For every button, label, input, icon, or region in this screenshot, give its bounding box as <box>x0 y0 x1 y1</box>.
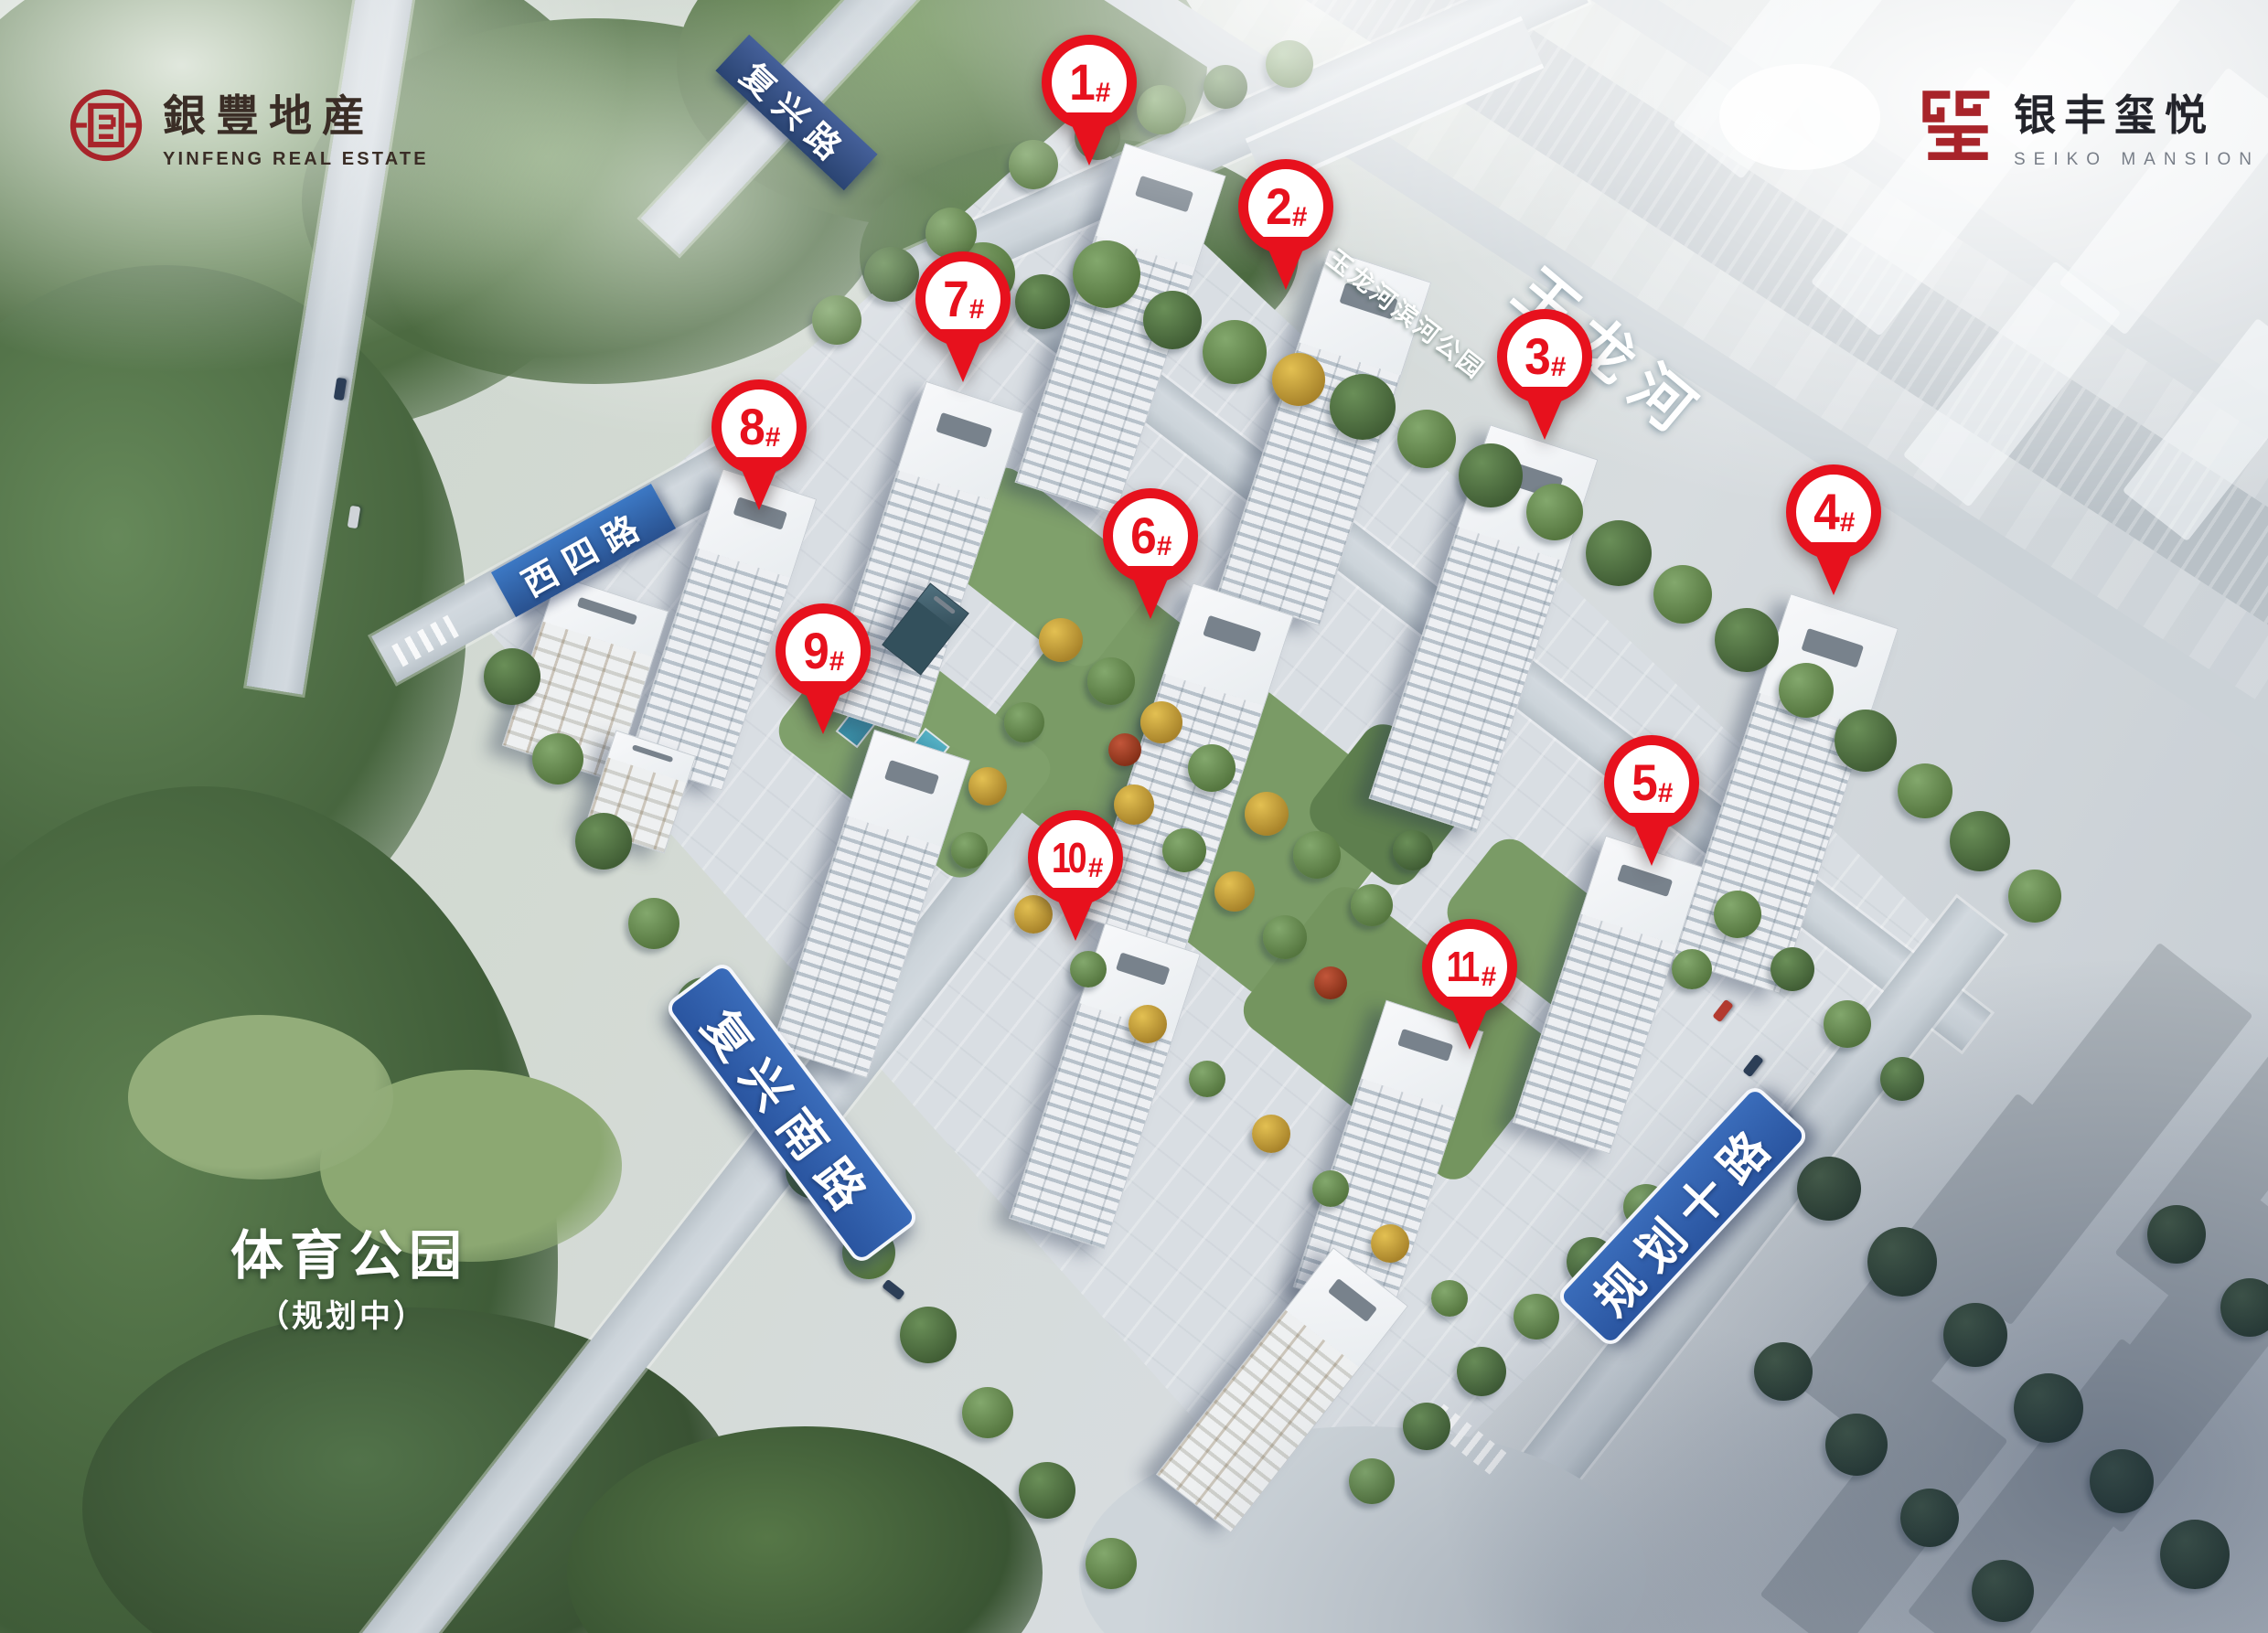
marker-hash: # <box>829 648 845 676</box>
marker-hash: # <box>1481 964 1496 991</box>
tree <box>1824 1000 1871 1048</box>
marker-number: 6 <box>1130 510 1155 561</box>
tree <box>1330 374 1396 440</box>
tree <box>2014 1373 2083 1443</box>
tree <box>1880 1057 1924 1101</box>
tree <box>1371 1224 1409 1263</box>
tree <box>1014 895 1053 934</box>
logo-left-en: YINFENG REAL ESTATE <box>163 149 429 170</box>
tree <box>1898 763 1952 818</box>
tree <box>1771 947 1814 991</box>
marker-number: 2 <box>1266 181 1290 232</box>
tree <box>1653 565 1712 624</box>
marker-hash: # <box>1840 509 1856 537</box>
tree <box>1714 891 1761 938</box>
tree <box>1108 733 1141 766</box>
tree <box>1293 831 1341 879</box>
marker-hash: # <box>1088 855 1104 882</box>
tree <box>1312 1170 1349 1207</box>
tree <box>951 832 988 869</box>
tree <box>900 1307 957 1363</box>
marker-number: 8 <box>739 401 764 453</box>
tree <box>1586 520 1652 586</box>
tree <box>1162 828 1206 872</box>
tree <box>1140 701 1182 743</box>
tree <box>1039 618 1083 662</box>
building-marker-5[interactable]: 5# <box>1604 735 1699 830</box>
tree <box>1204 65 1247 109</box>
tree <box>2008 870 2061 923</box>
sports-park-title-text: 体育公园 <box>230 1226 468 1286</box>
yinfeng-real-estate-logo: 銀豐地産 YINFENG REAL ESTATE <box>66 80 429 170</box>
tree <box>1526 484 1583 540</box>
tree <box>1188 744 1236 792</box>
sports-park-subtitle-text: （规划中） <box>258 1299 427 1334</box>
marker-number: 5 <box>1631 757 1656 808</box>
tree <box>1715 608 1779 672</box>
tree <box>1754 1342 1813 1401</box>
marker-hash: # <box>969 296 985 324</box>
tree <box>1972 1560 2034 1622</box>
tree <box>1203 320 1267 384</box>
tree <box>1397 410 1456 468</box>
car <box>882 1279 905 1300</box>
building-marker-10[interactable]: 10# <box>1028 810 1123 905</box>
tree <box>1314 966 1347 999</box>
building-marker-11[interactable]: 11# <box>1422 919 1517 1014</box>
tree <box>962 1387 1013 1438</box>
logo-right-cn: 银丰玺悦 <box>2014 82 2260 143</box>
tree <box>1087 657 1135 705</box>
marker-number: 3 <box>1524 331 1549 382</box>
marker-number: 10 <box>1051 837 1083 879</box>
marker-hash: # <box>1551 354 1567 381</box>
tree <box>812 295 861 345</box>
aerial-masterplan-rendering: 复兴路 西四路 复兴南路 规划十路 玉龙河 玉龙河滨河公园 体育公园 （规划中）… <box>0 0 2268 1633</box>
tree <box>2160 1520 2230 1589</box>
logo-right-en: SEIKO MANSION <box>2014 150 2260 170</box>
tree <box>1514 1294 1559 1339</box>
tree <box>1073 240 1140 308</box>
forest-canopy <box>128 1015 393 1179</box>
tree <box>2090 1449 2154 1513</box>
tree <box>1137 85 1186 134</box>
marker-number: 7 <box>943 273 968 325</box>
tree <box>1779 663 1834 718</box>
tree <box>532 733 583 784</box>
marker-hash: # <box>1096 80 1111 107</box>
tree <box>1349 1458 1395 1504</box>
tree <box>1943 1303 2007 1367</box>
marker-number: 4 <box>1813 486 1838 538</box>
marker-hash: # <box>1292 204 1308 231</box>
building-marker-9[interactable]: 9# <box>776 603 871 699</box>
tree <box>2147 1205 2206 1264</box>
tree <box>1835 710 1897 772</box>
building-marker-2[interactable]: 2# <box>1238 159 1333 254</box>
building-marker-1[interactable]: 1# <box>1042 35 1137 130</box>
tree <box>1272 353 1325 406</box>
building-marker-6[interactable]: 6# <box>1103 488 1198 583</box>
seiko-mansion-seal-icon <box>1919 87 1997 165</box>
tree <box>1189 1061 1225 1097</box>
building-marker-3[interactable]: 3# <box>1497 309 1592 404</box>
marker-hash: # <box>1658 780 1674 807</box>
marker-hash: # <box>765 424 781 452</box>
tree <box>1086 1538 1137 1589</box>
tree <box>1245 792 1289 836</box>
building-marker-7[interactable]: 7# <box>915 251 1011 347</box>
tree <box>1459 443 1523 507</box>
tree <box>1015 274 1070 329</box>
marker-number: 9 <box>803 625 828 677</box>
tree <box>1266 40 1313 88</box>
building-marker-4[interactable]: 4# <box>1786 464 1881 560</box>
tree <box>1129 1005 1167 1043</box>
tree <box>1867 1227 1937 1297</box>
tree <box>1351 884 1393 926</box>
tree <box>1214 871 1255 912</box>
tree <box>1797 1157 1861 1221</box>
tree <box>1019 1462 1075 1519</box>
tree <box>1950 811 2010 871</box>
sports-park-title: 体育公园 <box>230 1212 468 1289</box>
tree <box>1263 915 1307 959</box>
tree <box>1252 1115 1290 1153</box>
tree <box>628 898 679 949</box>
tree <box>484 648 540 705</box>
marker-number: 1 <box>1069 57 1094 108</box>
sports-park-subtitle: （规划中） <box>258 1291 427 1336</box>
tree <box>1004 702 1044 742</box>
tree <box>968 767 1007 806</box>
building-marker-8[interactable]: 8# <box>711 379 807 475</box>
marker-hash: # <box>1157 533 1172 560</box>
tree <box>1143 291 1202 349</box>
seiko-mansion-logo: 银丰玺悦 SEIKO MANSION <box>1919 82 2260 170</box>
tree <box>1672 949 1712 989</box>
tree <box>1009 140 1058 189</box>
tree <box>575 813 632 870</box>
yinfeng-seal-icon <box>66 85 146 165</box>
tree <box>1900 1489 1959 1547</box>
tree <box>1403 1403 1450 1450</box>
tree <box>1070 951 1107 987</box>
logo-left-cn: 銀豐地産 <box>163 80 429 144</box>
tree <box>864 247 919 302</box>
tree <box>1431 1280 1468 1317</box>
marker-number: 11 <box>1446 945 1476 987</box>
tree <box>1825 1414 1888 1476</box>
pond <box>1719 64 1880 170</box>
tree <box>1393 830 1433 870</box>
tree <box>1457 1347 1506 1396</box>
tree <box>1114 784 1154 825</box>
